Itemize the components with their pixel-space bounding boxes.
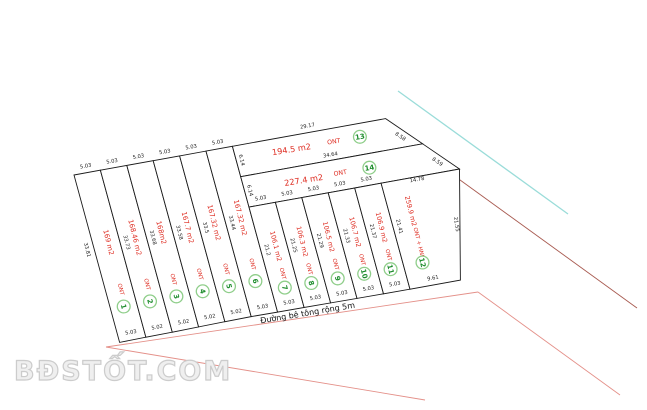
edge-label-top: 5.03 — [185, 144, 197, 152]
edge-label-top: 5.03 — [159, 148, 171, 156]
edge-label-top: 5.03 — [132, 153, 144, 161]
edge-label-top: 29.17 — [300, 122, 316, 130]
boundary-line-diagonal-near — [478, 292, 620, 395]
plot-14-number: 14 — [364, 163, 375, 172]
watermark: BĐSTỐT.COM — [14, 356, 232, 387]
edge-label-side: 33.81 — [82, 242, 91, 258]
parcel-map: 5.035.0333.81169 m2ONT15.035.0233.73168.… — [0, 0, 647, 410]
edge-label-top: 5.03 — [212, 139, 224, 147]
cadastral-map-page: 5.035.0333.81169 m2ONT15.035.0233.73168.… — [0, 0, 647, 410]
edge-label-top: 5.03 — [80, 163, 92, 171]
edge-label-top: 5.03 — [106, 158, 118, 166]
plot-13-number: 13 — [355, 132, 366, 141]
boundary-line-diagonal-far — [449, 172, 637, 308]
